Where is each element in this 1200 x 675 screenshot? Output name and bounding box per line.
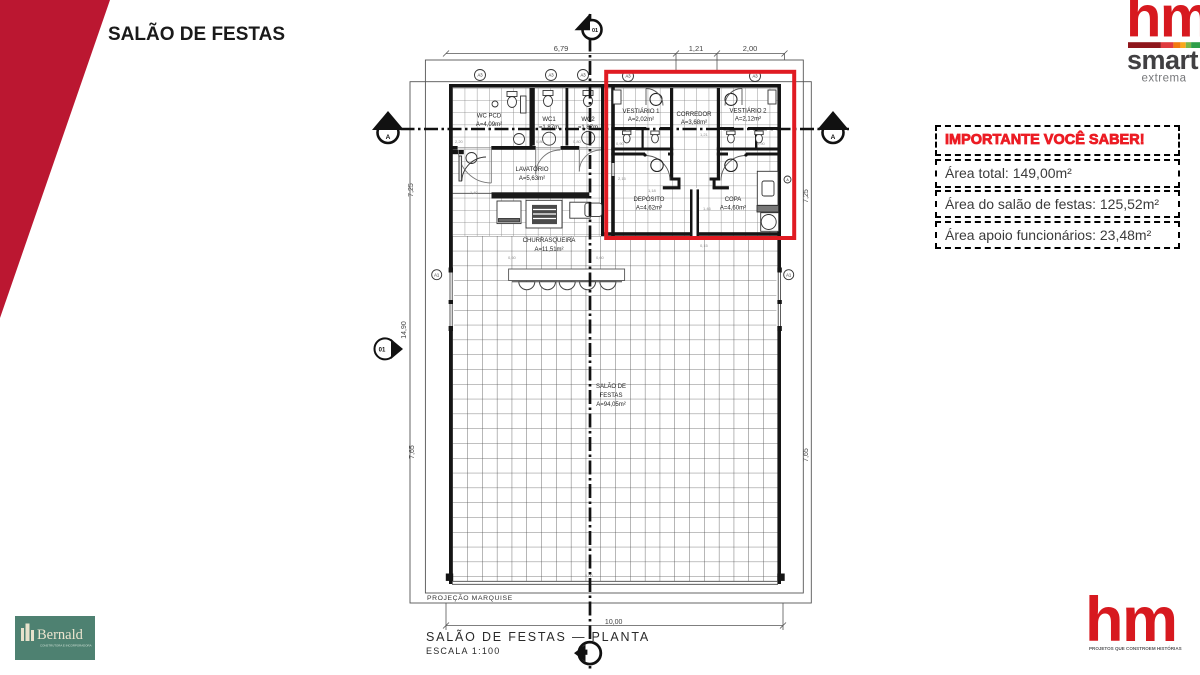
svg-text:0,60: 0,60 [596, 255, 605, 260]
svg-text:A=11,51m²: A=11,51m² [534, 247, 563, 253]
svg-text:0,90: 0,90 [616, 141, 625, 146]
svg-text:A3: A3 [752, 74, 758, 79]
svg-text:A=2,12m²: A=2,12m² [735, 117, 761, 123]
svg-text:A: A [386, 134, 391, 141]
svg-text:A: A [831, 134, 836, 141]
svg-text:WC1: WC1 [542, 117, 556, 123]
svg-text:A3: A3 [580, 73, 586, 78]
svg-text:14,90: 14,90 [401, 321, 408, 339]
svg-text:hm: hm [1085, 585, 1177, 655]
svg-text:LAVATÓRIO: LAVATÓRIO [515, 166, 548, 173]
svg-text:0,15: 0,15 [700, 243, 709, 248]
svg-text:1,21: 1,21 [689, 44, 704, 53]
svg-text:A3: A3 [625, 74, 631, 79]
svg-text:CORREDOR: CORREDOR [676, 112, 712, 118]
svg-text:WC PCD: WC PCD [477, 114, 502, 120]
svg-text:A1: A1 [786, 272, 792, 277]
svg-text:1,40: 1,40 [470, 190, 479, 195]
svg-text:PROJETOS QUE CONSTROEM HISTÓRI: PROJETOS QUE CONSTROEM HISTÓRIAS [1089, 644, 1182, 651]
svg-text:ESCALA 1:100: ESCALA 1:100 [426, 646, 500, 656]
svg-text:SALÃO DE FESTAS — PLANTA: SALÃO DE FESTAS — PLANTA [426, 630, 650, 644]
svg-text:7,25: 7,25 [803, 189, 810, 203]
svg-text:7,65: 7,65 [409, 445, 416, 459]
svg-text:6,79: 6,79 [554, 44, 569, 53]
svg-text:SALÃO DE: SALÃO DE [596, 383, 626, 390]
svg-text:VESTIÁRIO 1: VESTIÁRIO 1 [622, 108, 660, 115]
svg-text:0,80: 0,80 [573, 139, 582, 144]
svg-text:smart: smart [1127, 45, 1199, 75]
svg-text:A3: A3 [477, 73, 483, 78]
svg-text:hm: hm [1126, 0, 1200, 50]
svg-text:PROJEÇÃO MARQUISE: PROJEÇÃO MARQUISE [427, 593, 513, 602]
svg-text:A=4,62m²: A=4,62m² [636, 206, 662, 212]
svg-text:1,18: 1,18 [648, 188, 657, 193]
svg-text:2,20: 2,20 [455, 139, 464, 144]
svg-text:0,60: 0,60 [508, 255, 517, 260]
svg-text:0,80: 0,80 [536, 139, 545, 144]
svg-text:01: 01 [379, 348, 386, 354]
svg-text:A=4,09m²: A=4,09m² [476, 122, 502, 128]
svg-text:extrema: extrema [1141, 73, 1186, 85]
svg-text:0,90: 0,90 [757, 141, 766, 146]
svg-text:FESTAS: FESTAS [600, 393, 623, 399]
svg-text:2,00: 2,00 [743, 44, 758, 53]
svg-text:A: A [786, 178, 789, 182]
svg-text:Bernald: Bernald [37, 627, 84, 643]
svg-text:5,00: 5,00 [585, 573, 594, 578]
svg-text:A=3,68m²: A=3,68m² [681, 120, 707, 126]
svg-text:CHURRASQUEIRA: CHURRASQUEIRA [523, 238, 576, 244]
svg-text:2,15: 2,15 [618, 176, 627, 181]
svg-text:10,00: 10,00 [605, 619, 623, 626]
svg-text:A=5,63m²: A=5,63m² [519, 176, 545, 182]
svg-text:7,65: 7,65 [803, 448, 810, 462]
svg-text:A=4,60m²: A=4,60m² [720, 206, 746, 212]
svg-text:A=94,05m²: A=94,05m² [596, 402, 626, 408]
svg-text:01: 01 [592, 28, 598, 34]
svg-text:WC2: WC2 [581, 117, 595, 123]
svg-text:=1,87m: =1,87m [578, 125, 598, 131]
svg-text:A3: A3 [548, 73, 554, 78]
svg-text:=1,87m: =1,87m [539, 125, 559, 131]
svg-text:7,25: 7,25 [408, 183, 415, 197]
svg-text:1,21: 1,21 [700, 132, 709, 137]
svg-text:CONSTRUTORA E INCORPORADORA: CONSTRUTORA E INCORPORADORA [40, 644, 92, 648]
svg-text:COPA: COPA [725, 197, 742, 203]
svg-text:A1: A1 [434, 272, 440, 277]
svg-text:VESTIÁRIO 2: VESTIÁRIO 2 [729, 108, 767, 115]
svg-text:A=2,02m²: A=2,02m² [628, 117, 654, 123]
svg-text:1,46: 1,46 [703, 206, 712, 211]
svg-text:DEPÓSITO: DEPÓSITO [634, 196, 665, 203]
